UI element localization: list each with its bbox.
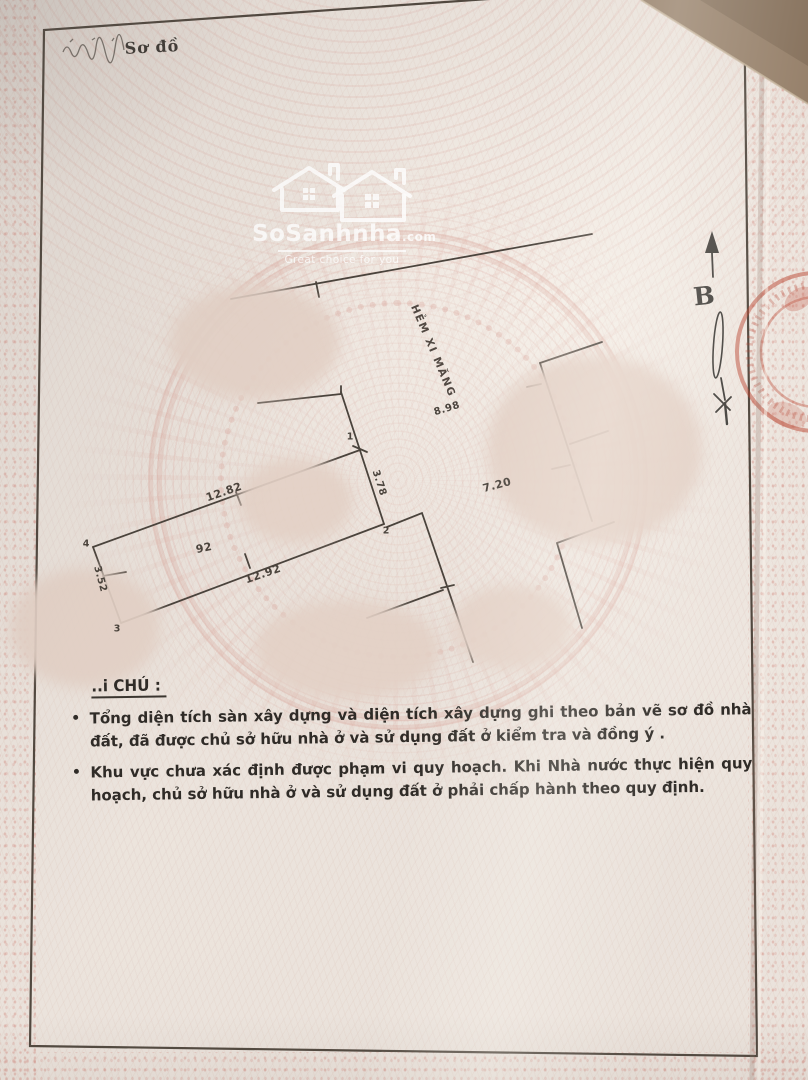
point-label-3: 3 — [114, 624, 121, 635]
blur-patch — [170, 285, 340, 400]
bullet-icon: • — [62, 761, 91, 806]
blur-patch — [487, 355, 702, 545]
note-item: • Tổng diện tích sàn xây dựng và diện tí… — [62, 698, 763, 753]
handwritten-label: Sơ đồ — [124, 36, 180, 58]
bullet-icon: • — [62, 707, 91, 752]
watermark-logo: SoSanhnha.com Great choice for you — [252, 160, 432, 266]
notes-heading: ..i CHÚ : — [91, 675, 167, 698]
north-arrow-head — [705, 231, 719, 253]
houses-icon — [254, 160, 430, 224]
point-label-1: 1 — [347, 432, 354, 443]
blur-patch — [10, 568, 160, 688]
blur-patch — [238, 458, 353, 543]
handwriting-scribble — [63, 34, 124, 62]
blur-patch — [452, 585, 572, 670]
logo-divider — [278, 250, 406, 252]
page-crease — [752, 60, 769, 1080]
logo-suffix: .com — [402, 230, 436, 244]
north-symbol-label: B — [692, 280, 716, 311]
logo-tagline: Great choice for you — [252, 254, 432, 266]
north-arrow — [705, 231, 731, 424]
notes-section: ..i CHÚ : • Tổng diện tích sàn xây dựng … — [61, 667, 763, 807]
tick-south-edge — [245, 554, 250, 568]
logo-brand-text: SoSanhnha.com — [252, 224, 432, 247]
note-text-2: Khu vực chưa xác định được phạm vi quy h… — [90, 752, 752, 806]
scanned-land-document-photo: Sơ đồ HẺM XI MĂNG 8.98 12.82 12.92 3.52 … — [0, 0, 808, 1080]
point-label-2: 2 — [383, 526, 390, 537]
background-corner-wedge — [641, 0, 808, 104]
note-text-1: Tổng diện tích sàn xây dựng và diện tích… — [90, 698, 752, 752]
point-label-4: 4 — [83, 539, 90, 550]
